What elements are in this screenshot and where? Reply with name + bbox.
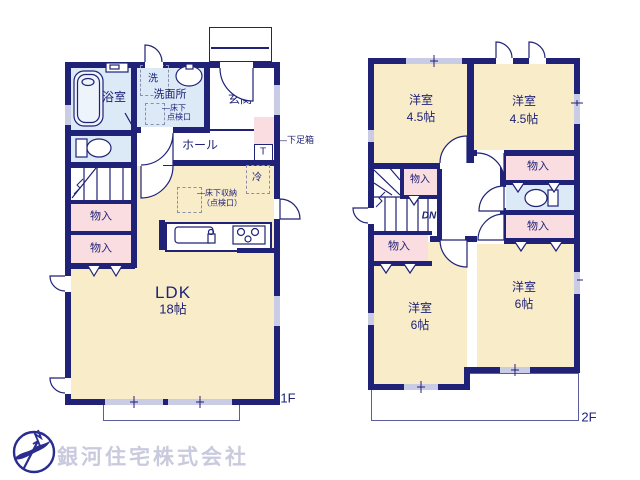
kitchen-sink-icon — [175, 227, 215, 243]
sink-basin-icon — [176, 64, 202, 86]
bath-counter-icon — [106, 63, 128, 72]
bath-door-icon — [125, 113, 133, 127]
stairs-up-icon — [72, 166, 123, 200]
awning-window-icon — [50, 276, 65, 393]
toilet-icon — [525, 190, 558, 207]
stairs-down-icon — [374, 166, 437, 233]
door-arc — [440, 136, 504, 267]
stove-icon — [233, 226, 265, 244]
bathtub-icon — [74, 71, 103, 126]
plan-symbols-overlay — [0, 0, 640, 480]
door-arc — [141, 45, 300, 219]
floor-plan-canvas: 浴室 洗 洗面所 ―床下 点検口 玄関 ホール ―下足箱 T 冷 UP ―床下収… — [0, 0, 640, 480]
closet-chevron — [88, 266, 122, 276]
window-tick — [130, 396, 204, 408]
toilet-icon — [76, 139, 111, 157]
company-logo-icon — [14, 430, 54, 472]
